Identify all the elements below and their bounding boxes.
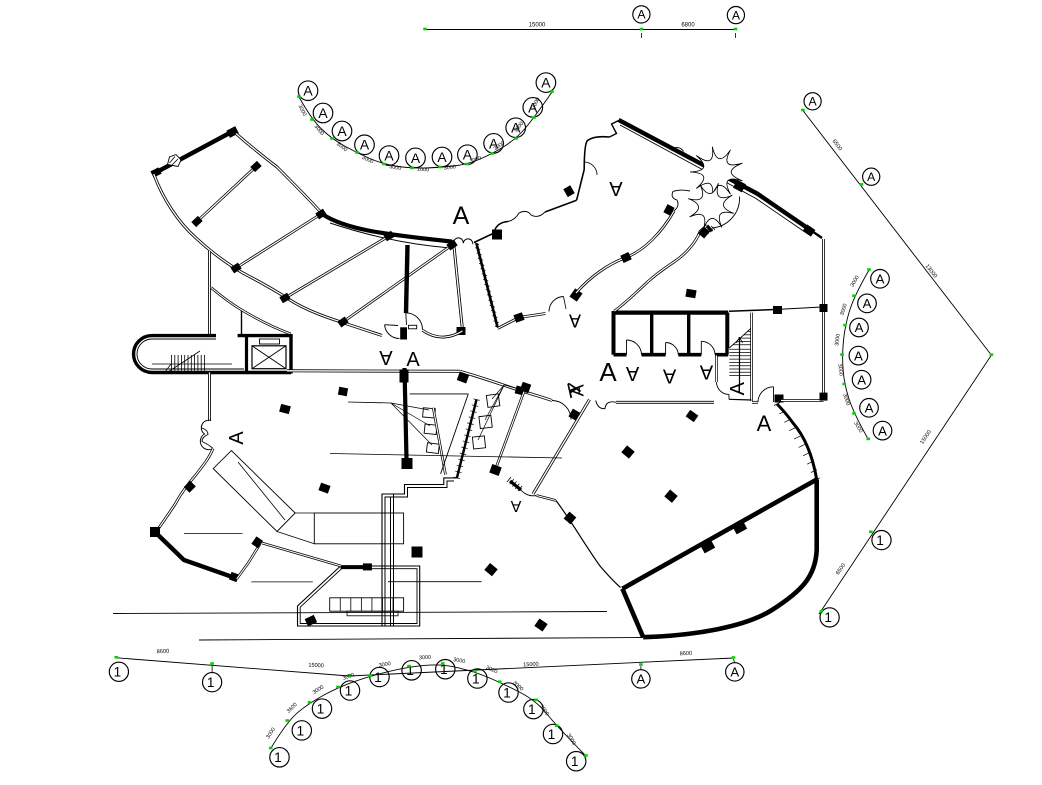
- svg-text:A: A: [437, 149, 447, 165]
- svg-text:6800: 6800: [681, 23, 695, 29]
- svg-text:1: 1: [296, 723, 304, 738]
- svg-text:A: A: [662, 364, 676, 386]
- svg-text:A: A: [854, 348, 863, 363]
- svg-text:A: A: [757, 411, 772, 436]
- svg-text:1: 1: [374, 670, 382, 685]
- svg-text:A: A: [453, 202, 470, 230]
- svg-text:A: A: [379, 346, 393, 368]
- svg-text:A: A: [411, 150, 421, 166]
- svg-text:1: 1: [548, 727, 556, 742]
- svg-text:A: A: [809, 95, 818, 109]
- svg-text:A: A: [337, 123, 347, 139]
- svg-text:A: A: [568, 384, 588, 396]
- svg-text:1: 1: [317, 701, 325, 716]
- svg-text:1: 1: [876, 533, 884, 548]
- svg-text:A: A: [303, 83, 313, 99]
- svg-text:A: A: [318, 105, 328, 121]
- svg-text:8600: 8600: [680, 651, 693, 658]
- svg-text:A: A: [384, 148, 394, 164]
- svg-text:A: A: [867, 170, 876, 184]
- svg-text:A: A: [732, 8, 741, 22]
- svg-text:A: A: [878, 423, 887, 438]
- svg-text:1000: 1000: [417, 167, 429, 174]
- svg-text:1: 1: [114, 665, 122, 680]
- svg-text:3000: 3000: [444, 164, 457, 171]
- svg-text:A: A: [727, 381, 749, 395]
- svg-text:A: A: [855, 320, 864, 335]
- svg-text:A: A: [569, 311, 581, 331]
- svg-text:15000: 15000: [529, 23, 546, 29]
- svg-text:3000: 3000: [419, 655, 431, 662]
- svg-text:A: A: [406, 349, 420, 371]
- svg-text:A: A: [609, 177, 623, 199]
- svg-text:1: 1: [345, 683, 353, 698]
- svg-text:A: A: [730, 665, 739, 680]
- svg-text:A: A: [637, 672, 646, 687]
- svg-text:1: 1: [528, 702, 536, 717]
- svg-text:A: A: [510, 497, 521, 514]
- svg-text:1: 1: [571, 754, 579, 769]
- svg-text:A: A: [876, 271, 885, 286]
- svg-text:15000: 15000: [523, 662, 539, 669]
- svg-text:A: A: [637, 8, 646, 22]
- svg-text:1: 1: [472, 671, 480, 686]
- svg-text:15000: 15000: [308, 663, 324, 670]
- svg-text:A: A: [857, 372, 866, 387]
- svg-text:A: A: [865, 400, 874, 415]
- svg-text:A: A: [625, 362, 639, 384]
- svg-text:A: A: [699, 361, 713, 383]
- svg-text:A: A: [226, 431, 248, 445]
- svg-text:A: A: [360, 137, 370, 153]
- svg-text:A: A: [863, 296, 872, 311]
- svg-text:1: 1: [503, 685, 511, 700]
- svg-text:A: A: [541, 75, 551, 91]
- svg-text:A: A: [599, 357, 617, 387]
- svg-text:8600: 8600: [157, 649, 170, 655]
- svg-text:1: 1: [824, 610, 832, 625]
- svg-text:1: 1: [274, 750, 282, 765]
- svg-text:1: 1: [207, 675, 215, 690]
